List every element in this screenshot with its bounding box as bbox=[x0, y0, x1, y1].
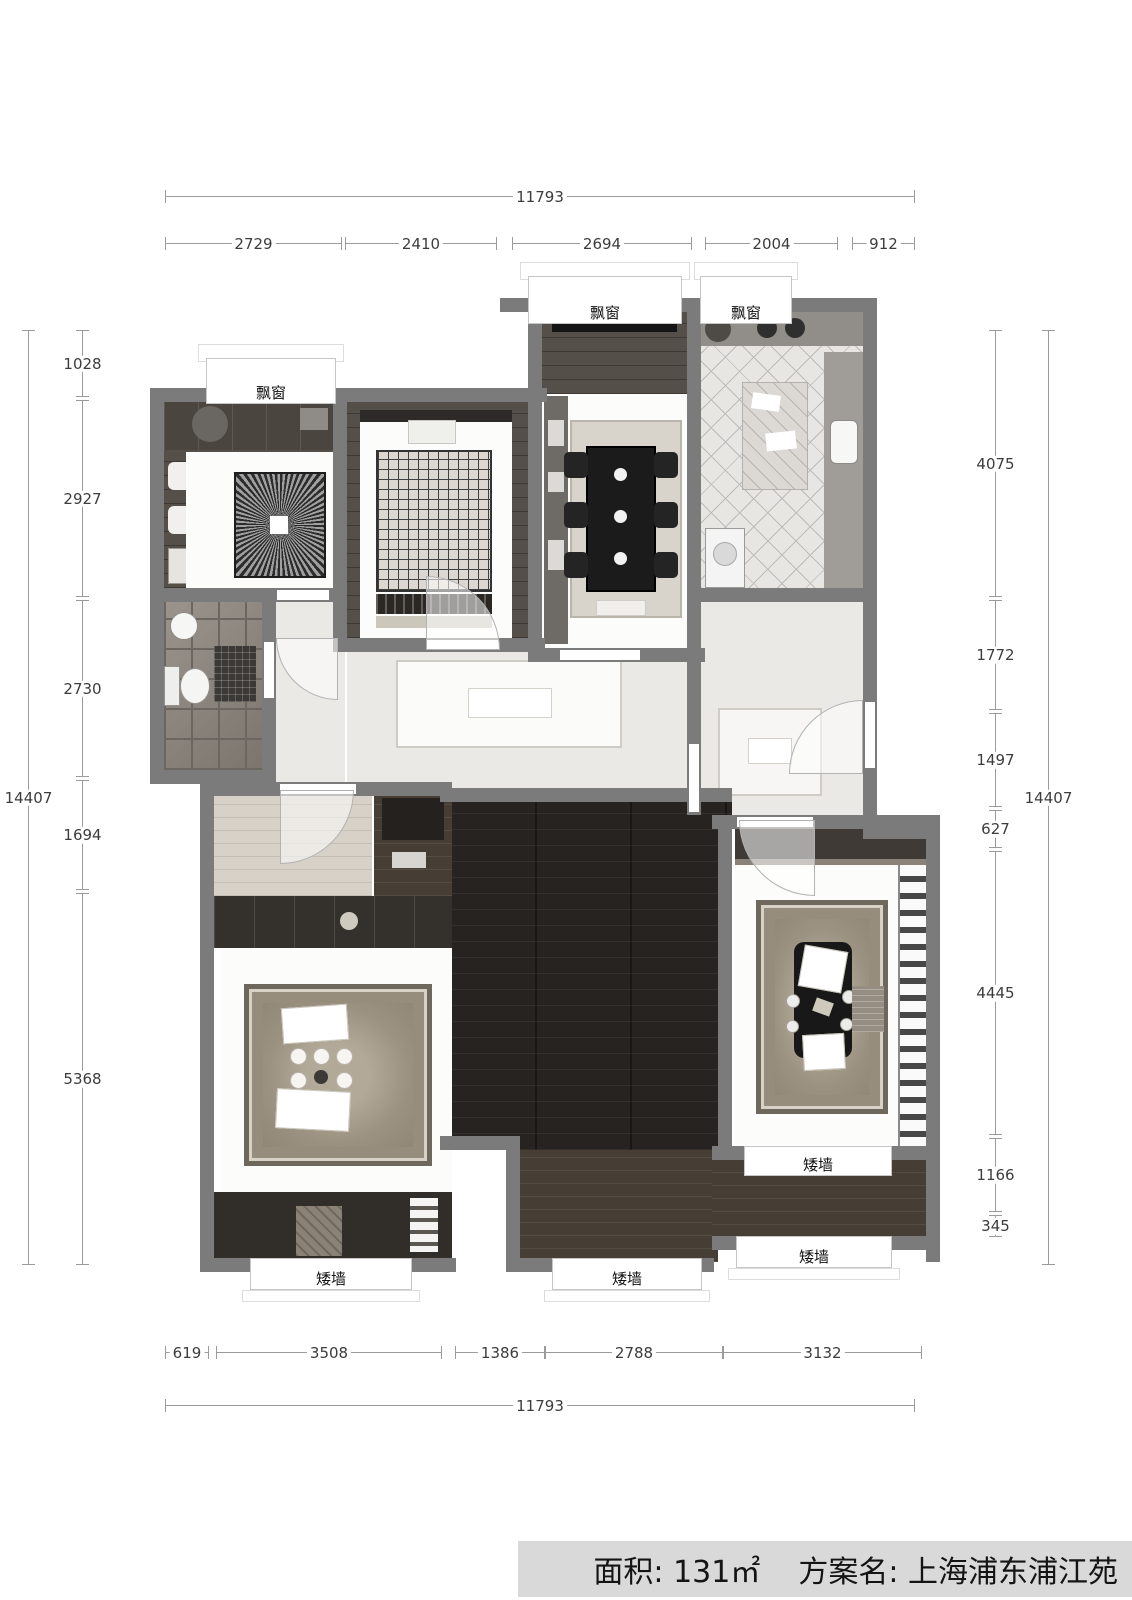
bay-window-label: 飘窗 bbox=[590, 305, 620, 323]
dim-bottom-seg-4: 2788 bbox=[545, 1352, 723, 1353]
wall bbox=[718, 825, 732, 1155]
wall bbox=[150, 388, 164, 784]
kitchen-sink bbox=[830, 420, 858, 464]
area-value: 131㎡ bbox=[673, 1547, 760, 1591]
dim-bottom-seg-2: 3508 bbox=[216, 1352, 442, 1353]
bathroom-sink bbox=[170, 612, 198, 640]
bedroom4-cup-1 bbox=[786, 994, 800, 1008]
bay-window-bedroom1: 飘窗 bbox=[206, 358, 336, 404]
door-gap-entry bbox=[689, 744, 699, 812]
bedroom3-dresser-item bbox=[392, 852, 426, 868]
toilet-tank bbox=[164, 666, 180, 706]
window-sill bbox=[728, 1268, 900, 1280]
bedroom3-bottom-rug-piece bbox=[296, 1206, 342, 1256]
toilet-bowl bbox=[180, 668, 210, 704]
dining-plate-3 bbox=[614, 552, 627, 565]
dining-chair-3 bbox=[564, 552, 588, 578]
dining-chair-6 bbox=[654, 552, 678, 578]
dim-right-seg-6: 1166 bbox=[995, 1138, 996, 1212]
bedroom4-mat-top bbox=[798, 944, 849, 993]
dining-mat bbox=[596, 600, 646, 616]
dim-right-seg-2: 1772 bbox=[995, 600, 996, 710]
dining-chair-4 bbox=[654, 452, 678, 478]
wall bbox=[687, 588, 877, 602]
dim-right-seg-4: 627 bbox=[995, 810, 996, 848]
kitchen-right-counter bbox=[824, 352, 863, 588]
dim-top-seg-4: 2004 bbox=[705, 243, 838, 244]
dining-chair-5 bbox=[654, 502, 678, 528]
area-label: 面积: bbox=[593, 1547, 663, 1591]
bedroom3-wardrobe bbox=[214, 896, 452, 948]
bedroom3-center-dish bbox=[314, 1070, 328, 1084]
living-extension-floor bbox=[520, 1150, 718, 1262]
footer-bar: 面积: 131㎡ 方案名: 上海浦东浦江苑 bbox=[518, 1541, 1132, 1597]
low-wall-label: 矮墙 bbox=[799, 1249, 829, 1267]
living-room-floor bbox=[440, 802, 732, 1150]
wall bbox=[687, 298, 701, 602]
door-gap-front-door bbox=[865, 702, 875, 768]
kitchen-table-item-2 bbox=[765, 430, 797, 451]
dining-plate-2 bbox=[614, 510, 627, 523]
low-wall-window-living: 矮墙 bbox=[552, 1258, 702, 1290]
low-wall-label: 矮墙 bbox=[803, 1157, 833, 1175]
bedroom3-pillow-bottom bbox=[275, 1088, 351, 1132]
wall bbox=[506, 1136, 520, 1272]
low-wall-window-south-band: 矮墙 bbox=[736, 1236, 892, 1268]
dim-left-seg-3: 2730 bbox=[82, 600, 83, 777]
bedroom3-pouf-1 bbox=[290, 1048, 307, 1065]
low-wall-window-bedroom4: 矮墙 bbox=[744, 1146, 892, 1176]
bedroom3-pouf-4 bbox=[290, 1072, 307, 1089]
plan-name-value: 上海浦东浦江苑 bbox=[908, 1547, 1118, 1591]
dim-right-seg-5: 4445 bbox=[995, 851, 996, 1135]
wall bbox=[528, 298, 542, 662]
wall bbox=[863, 298, 877, 616]
bedroom2-bed-quilt bbox=[376, 450, 492, 592]
bedroom2-pillow bbox=[408, 420, 456, 444]
dim-right-total: 14407 bbox=[1048, 330, 1049, 1265]
bedroom4-mat-bottom bbox=[802, 1033, 846, 1071]
low-wall-label: 矮墙 bbox=[612, 1271, 642, 1289]
dim-value: 11793 bbox=[513, 188, 567, 205]
floor-plan-page: 11793 2729 2410 2694 2004 912 619 3508 1… bbox=[0, 0, 1132, 1600]
dim-left-seg-1: 1028 bbox=[82, 330, 83, 397]
bedroom3-pouf-5 bbox=[336, 1072, 353, 1089]
dim-bottom-seg-1: 619 bbox=[165, 1352, 209, 1353]
dim-right-seg-1: 4075 bbox=[995, 330, 996, 597]
counter-item-1 bbox=[548, 420, 564, 446]
dim-top-seg-3: 2694 bbox=[512, 243, 692, 244]
bay-window-label: 飘窗 bbox=[731, 305, 761, 323]
door-gap-bathroom bbox=[264, 642, 274, 698]
bathroom-mat bbox=[214, 646, 256, 702]
bay-window-label: 飘窗 bbox=[256, 385, 286, 403]
low-wall-window-bedroom3: 矮墙 bbox=[250, 1258, 412, 1290]
wall bbox=[200, 782, 214, 1272]
dining-chair-1 bbox=[564, 452, 588, 478]
bedroom4-side-cushion bbox=[852, 986, 884, 1032]
bay-window-dining: 飘窗 bbox=[528, 276, 682, 324]
window-sill bbox=[544, 1290, 710, 1302]
counter-item-3 bbox=[548, 540, 564, 570]
washing-machine-door bbox=[713, 542, 737, 566]
window-sill bbox=[242, 1290, 420, 1302]
door-gap-dining bbox=[560, 650, 640, 660]
dining-plate-1 bbox=[614, 468, 627, 481]
dim-top-seg-1: 2729 bbox=[165, 243, 342, 244]
dim-left-total: 14407 bbox=[28, 330, 29, 1265]
dim-left-seg-5: 5368 bbox=[82, 893, 83, 1265]
wall bbox=[333, 388, 347, 652]
dim-top-seg-2: 2410 bbox=[345, 243, 497, 244]
bedroom3-pillow-top bbox=[281, 1004, 349, 1045]
low-wall-label: 矮墙 bbox=[316, 1271, 346, 1289]
dining-chair-2 bbox=[564, 502, 588, 528]
bedroom3-shelf-items bbox=[410, 1198, 438, 1252]
entry-rug-inner bbox=[748, 738, 792, 764]
bedroom1-desk-item bbox=[300, 408, 328, 430]
dim-right-seg-7: 345 bbox=[995, 1215, 996, 1237]
bedroom3-dresser bbox=[382, 798, 444, 840]
bedroom4-cup-3 bbox=[786, 1020, 799, 1033]
dim-top-seg-5: 912 bbox=[852, 243, 915, 244]
dim-left-seg-2: 2927 bbox=[82, 400, 83, 597]
bedroom4-bookshelf bbox=[898, 865, 928, 1146]
bedroom3-pouf-3 bbox=[336, 1048, 353, 1065]
dim-right-seg-3: 1497 bbox=[995, 713, 996, 807]
bedroom3-wardrobe-handle bbox=[340, 912, 358, 930]
door-gap-bedroom1 bbox=[277, 590, 329, 600]
dim-bottom-seg-3: 1386 bbox=[455, 1352, 545, 1353]
bedroom1-bed-center bbox=[270, 516, 288, 534]
bedroom3-pouf-2 bbox=[313, 1048, 330, 1065]
dim-bottom-seg-5: 3132 bbox=[723, 1352, 922, 1353]
bedroom1-stool bbox=[192, 406, 228, 442]
plan-name-label: 方案名: bbox=[798, 1547, 898, 1591]
hall-table-inner bbox=[468, 688, 552, 718]
dim-top-total: 11793 bbox=[165, 196, 915, 197]
counter-item-2 bbox=[548, 472, 564, 492]
bay-window-kitchen: 飘窗 bbox=[700, 276, 792, 324]
dim-bottom-total: 11793 bbox=[165, 1405, 915, 1406]
dim-left-seg-4: 1694 bbox=[82, 780, 83, 890]
wall bbox=[926, 825, 940, 1262]
